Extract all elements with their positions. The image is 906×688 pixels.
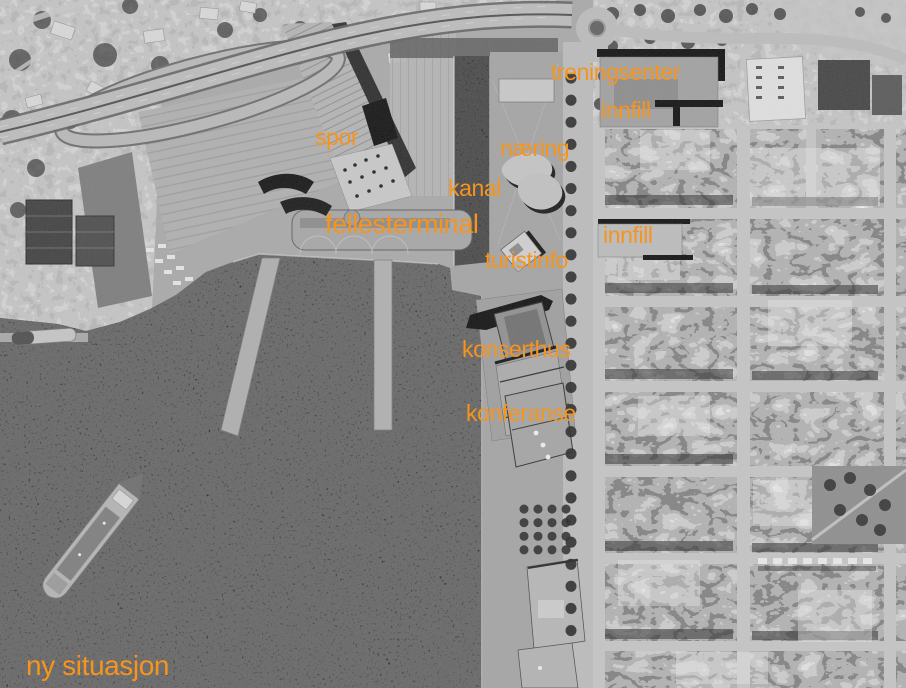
photo-grain: [0, 0, 906, 688]
situation-map: treningsenterinnfillspornæringkanalfelle…: [0, 0, 906, 688]
aerial-photo: [0, 0, 906, 688]
